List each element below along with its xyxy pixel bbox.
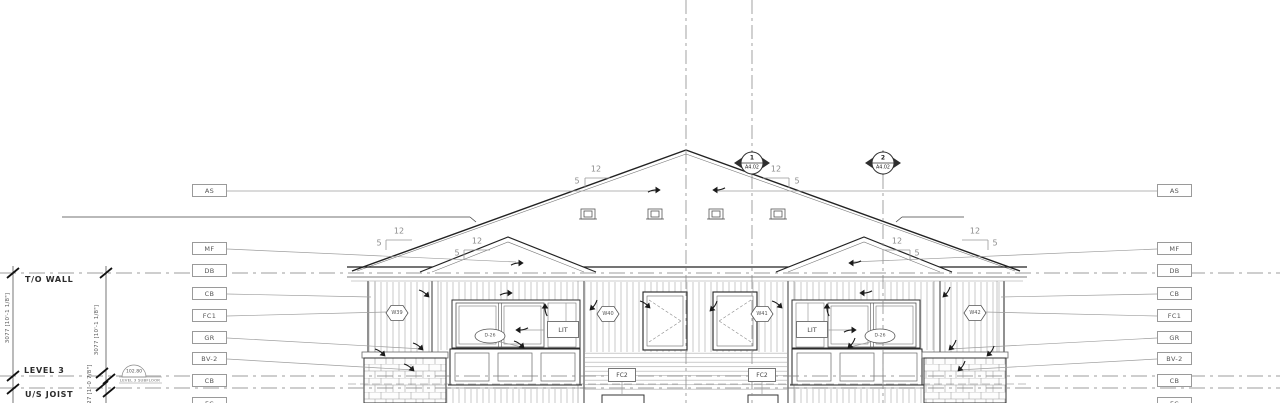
window-tag-w42: W42 [969, 310, 980, 316]
material-tag-left-partial: FC [192, 397, 227, 403]
material-tag-right-mf: MF [1157, 242, 1192, 255]
material-tag-right-partial: FC [1157, 397, 1192, 403]
section-marker-2-number: 2 [881, 155, 885, 162]
material-tag-right-gr: GR [1157, 331, 1192, 344]
door-tag-left: D-26 [484, 334, 495, 339]
material-tag-left-gr: GR [192, 331, 227, 344]
slope-rise-5: 5 [914, 249, 919, 258]
elevation-marker-value: 102.80 [126, 370, 142, 375]
section-marker-2-sheet: A4.02 [876, 166, 890, 171]
slope-brackets [386, 178, 988, 260]
slope-run-5: 12 [892, 237, 902, 246]
material-tag-right-cb: CB [1157, 287, 1192, 300]
material-tag-left-bv2: BV-2 [192, 352, 227, 365]
material-tag-right-bv2: BV-2 [1157, 352, 1192, 365]
slope-run-1: 12 [591, 165, 601, 174]
panel-tag-fc2-right: FC2 [748, 368, 776, 382]
slope-run-3: 12 [394, 227, 404, 236]
slope-run-2: 12 [771, 165, 781, 174]
section-marker-1-sheet: A4.02 [745, 166, 759, 171]
roof-vents [579, 209, 787, 219]
material-tag-right-db: DB [1157, 264, 1192, 277]
level-label-us-joist: U/S JOIST [25, 390, 73, 399]
window-tag-w41: W41 [756, 311, 767, 317]
slope-rise-4: 5 [454, 249, 459, 258]
dimension-left-outer: 3077 [10'-1 1/8"] [5, 293, 11, 344]
slope-rise-3: 5 [376, 239, 381, 248]
light-label-left: LIT [547, 321, 579, 338]
level-label-level3: LEVEL 3 [24, 366, 65, 375]
material-tag-left-cb2: CB [192, 374, 227, 387]
door-tag-right: D-26 [874, 334, 885, 339]
material-tag-right-fc1: FC1 [1157, 309, 1192, 322]
window-tag-w40: W40 [602, 311, 613, 317]
panel-tag-fc2-left: FC2 [608, 368, 636, 382]
material-tag-right-as: AS [1157, 184, 1192, 197]
slope-run-6: 12 [970, 227, 980, 236]
slope-rise-1: 5 [574, 177, 579, 186]
window-tag-w39: W39 [391, 310, 402, 316]
material-tag-right-cb2: CB [1157, 374, 1192, 387]
material-tag-left-cb: CB [192, 287, 227, 300]
dimension-joist-gap: 327 [1'-0 7/8"] [87, 364, 93, 403]
elevation-drawing-canvas: T/O WALL LEVEL 3 U/S JOIST 3077 [10'-1 1… [0, 0, 1280, 403]
material-tag-left-fc1: FC1 [192, 309, 227, 322]
level-label-to-wall: T/O WALL [25, 275, 73, 284]
slope-run-4: 12 [472, 237, 482, 246]
material-tag-left-mf: MF [192, 242, 227, 255]
material-tag-left-db: DB [192, 264, 227, 277]
slope-rise-2: 5 [794, 177, 799, 186]
material-tag-left-as: AS [192, 184, 227, 197]
dimension-left-inner: 3077 [10'-1 1/8"] [94, 305, 100, 356]
slope-rise-6: 5 [992, 239, 997, 248]
light-label-right: LIT [796, 321, 828, 338]
section-marker-1-number: 1 [750, 155, 754, 162]
elevation-marker-label: LEVEL 3 SUBFLOOR [120, 378, 160, 383]
